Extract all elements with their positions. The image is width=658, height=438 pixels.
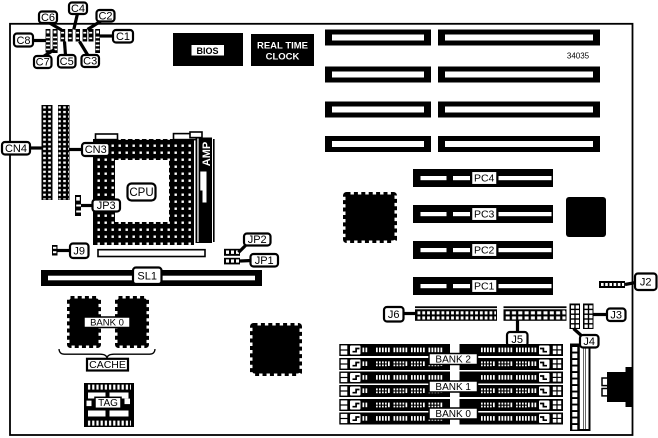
svg-text:TAG: TAG: [98, 398, 118, 409]
svg-text:J4: J4: [583, 336, 595, 348]
svg-text:J6: J6: [388, 309, 400, 321]
svg-text:JP2: JP2: [248, 234, 267, 246]
svg-text:C2: C2: [98, 11, 112, 23]
svg-text:BANK 2: BANK 2: [435, 354, 471, 365]
svg-text:BANK 0: BANK 0: [90, 318, 124, 329]
svg-text:CACHE: CACHE: [89, 359, 126, 371]
svg-text:CLOCK: CLOCK: [266, 52, 300, 63]
svg-text:PC4: PC4: [474, 173, 495, 185]
svg-text:CPU: CPU: [129, 187, 153, 199]
svg-text:AMP: AMP: [201, 142, 213, 166]
svg-text:C4: C4: [71, 3, 85, 15]
svg-text:JP3: JP3: [97, 200, 116, 212]
svg-text:JP1: JP1: [255, 255, 274, 267]
svg-text:C6: C6: [41, 12, 55, 24]
svg-text:C3: C3: [83, 56, 97, 68]
svg-text:C8: C8: [16, 35, 30, 47]
svg-text:SL1: SL1: [137, 271, 157, 283]
svg-text:REAL TIME: REAL TIME: [257, 41, 308, 52]
svg-text:J2: J2: [640, 277, 652, 289]
svg-text:BANK 0: BANK 0: [435, 409, 471, 420]
svg-text:PC3: PC3: [474, 209, 495, 221]
svg-text:CN3: CN3: [85, 144, 107, 156]
svg-text:PC2: PC2: [474, 245, 495, 257]
svg-text:34035: 34035: [567, 52, 590, 61]
svg-text:C7: C7: [36, 57, 50, 69]
svg-text:J9: J9: [73, 246, 85, 258]
svg-text:PC1: PC1: [474, 281, 495, 293]
svg-text:C1: C1: [116, 31, 130, 43]
svg-text:J3: J3: [610, 310, 622, 322]
svg-text:CN4: CN4: [5, 143, 27, 155]
svg-text:BANK 1: BANK 1: [435, 382, 471, 393]
svg-text:BIOS: BIOS: [196, 46, 218, 56]
svg-text:C5: C5: [60, 56, 74, 68]
